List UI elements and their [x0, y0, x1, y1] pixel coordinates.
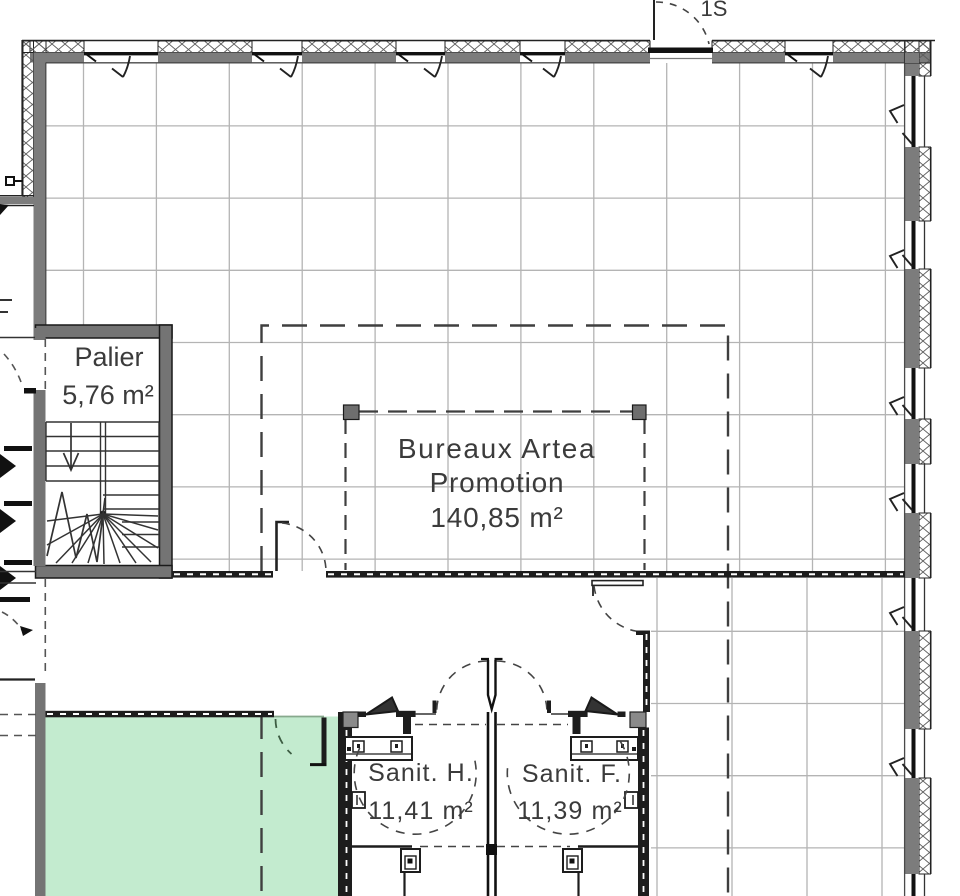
svg-text:1S: 1S: [701, 0, 728, 21]
svg-text:Sanit. H.: Sanit. H.: [368, 759, 474, 787]
svg-text:Palier: Palier: [74, 342, 143, 372]
svg-text:11,39 m²: 11,39 m²: [517, 797, 623, 825]
svg-text:140,85 m²: 140,85 m²: [430, 502, 563, 533]
svg-text:Promotion: Promotion: [430, 467, 565, 498]
svg-text:Sanit. F.: Sanit. F.: [522, 760, 622, 788]
svg-text:5,76 m²: 5,76 m²: [62, 380, 154, 410]
svg-text:11,41 m²: 11,41 m²: [368, 797, 474, 825]
svg-text:Bureaux Artea: Bureaux Artea: [398, 433, 596, 464]
